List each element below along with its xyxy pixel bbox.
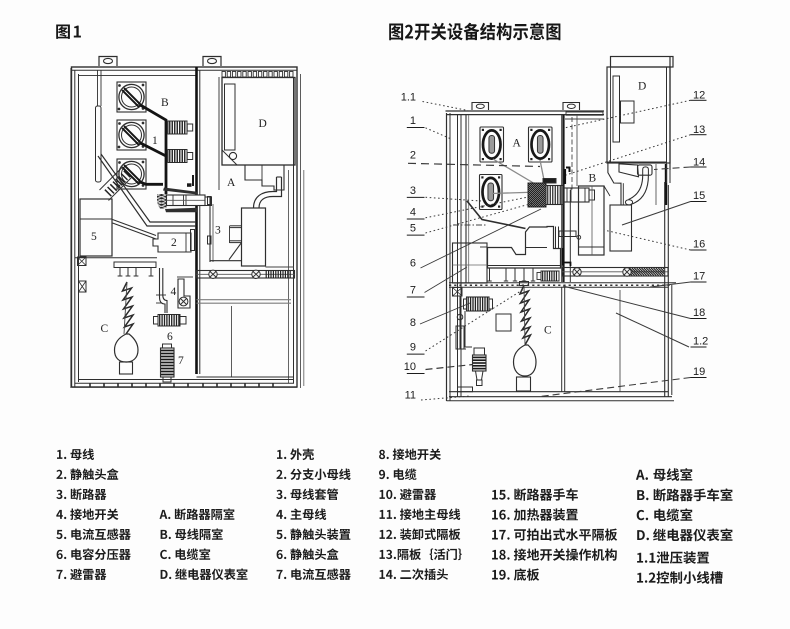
svg-text:7: 7 (410, 284, 416, 296)
svg-text:C: C (544, 325, 552, 337)
svg-text:6: 6 (410, 258, 416, 270)
svg-text:A: A (227, 177, 236, 189)
svg-text:17: 17 (693, 270, 705, 282)
svg-text:5: 5 (91, 231, 97, 243)
svg-text:15: 15 (693, 190, 705, 202)
svg-text:19: 19 (693, 366, 705, 378)
svg-text:1: 1 (410, 115, 416, 127)
svg-text:B: B (161, 97, 169, 109)
svg-text:1: 1 (152, 135, 158, 147)
svg-text:B: B (589, 173, 597, 185)
svg-text:3: 3 (215, 225, 221, 237)
svg-text:6: 6 (167, 331, 173, 343)
svg-text:4: 4 (410, 206, 416, 218)
svg-text:9: 9 (410, 342, 416, 354)
svg-text:18: 18 (693, 307, 705, 319)
svg-text:11: 11 (405, 390, 416, 402)
svg-text:2: 2 (171, 237, 177, 249)
svg-text:2: 2 (410, 150, 416, 162)
svg-text:8: 8 (410, 317, 416, 329)
svg-text:D: D (638, 80, 646, 92)
svg-text:1.1: 1.1 (401, 92, 416, 104)
svg-text:1.2: 1.2 (693, 335, 708, 347)
svg-text:16: 16 (693, 239, 705, 251)
svg-text:A: A (513, 138, 522, 150)
svg-text:C: C (101, 323, 109, 335)
svg-text:5: 5 (410, 223, 416, 235)
svg-text:D: D (259, 118, 267, 130)
svg-text:7: 7 (178, 355, 184, 367)
svg-text:3: 3 (410, 185, 416, 197)
svg-text:10: 10 (404, 361, 416, 373)
svg-text:4: 4 (171, 286, 177, 298)
svg-text:12: 12 (693, 90, 705, 102)
